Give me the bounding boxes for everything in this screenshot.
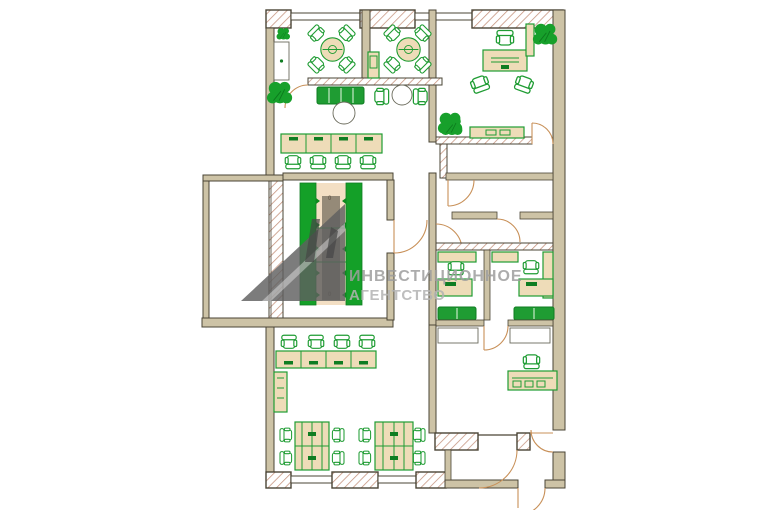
wall-left-lower — [266, 325, 274, 472]
cabinet — [438, 252, 476, 262]
armchair — [375, 88, 389, 104]
office-chair — [307, 24, 326, 43]
table — [510, 328, 550, 343]
corridor-wall-top — [283, 173, 393, 180]
wall-bottom-corner — [545, 480, 565, 488]
monitor — [390, 456, 398, 460]
window — [415, 13, 472, 20]
balcony-wall-left — [203, 175, 209, 325]
shelf — [526, 24, 534, 56]
office-chair — [413, 428, 425, 442]
plant-icon — [441, 117, 463, 135]
office-chair — [332, 428, 344, 442]
guest-chair — [513, 74, 534, 94]
reception-area — [267, 82, 427, 124]
office-chair — [413, 451, 425, 465]
open-office-bottom — [274, 335, 425, 470]
wall-exec-office-left — [429, 10, 436, 142]
desk-cluster — [280, 422, 344, 470]
wall-pillar — [266, 10, 291, 28]
plant-icon — [533, 24, 557, 45]
monitor — [309, 361, 318, 365]
vestibule-wall-v — [445, 450, 451, 480]
office-chair — [332, 451, 344, 465]
armchair — [413, 88, 427, 104]
office-chair — [285, 156, 300, 169]
door-arc — [497, 219, 520, 242]
wall-bottom-vestibule — [445, 480, 518, 488]
monitor — [390, 432, 398, 436]
door-arc — [484, 326, 508, 350]
floor-plan-drawing: 0 0 — [0, 0, 770, 510]
window — [291, 13, 362, 20]
door-arc — [448, 180, 474, 206]
desk-cluster — [359, 422, 425, 470]
door-arc — [532, 123, 553, 144]
offices-divider-wall — [484, 250, 490, 320]
office-chair — [334, 335, 349, 348]
office-chair — [308, 335, 323, 348]
cabinet-handle — [280, 59, 283, 62]
watermark-logo — [241, 204, 345, 301]
office-chair — [307, 55, 326, 74]
office-chair — [383, 55, 402, 74]
wall-hallway-h3b — [520, 212, 553, 219]
monitor — [308, 456, 316, 460]
monitor — [334, 361, 343, 365]
monitor — [289, 137, 298, 141]
monitor — [364, 137, 373, 141]
office-chair — [335, 156, 350, 169]
wall-pillar — [332, 472, 378, 488]
monitor — [339, 137, 348, 141]
office-chair — [360, 156, 375, 169]
vestibule-wall — [517, 433, 530, 450]
monitor — [314, 137, 323, 141]
office-desk — [519, 279, 553, 296]
desk-item — [501, 65, 509, 69]
plant-icon — [277, 28, 291, 40]
guest-chair — [470, 74, 491, 94]
monitor — [284, 361, 293, 365]
meeting-room-b — [368, 24, 432, 78]
coffee-table — [333, 102, 355, 124]
office-chair — [523, 261, 538, 274]
wall-pillar — [266, 472, 291, 488]
monitor — [359, 361, 368, 365]
reception-counter-wall — [308, 78, 442, 85]
watermark-line2: АГЕНТСТВО — [349, 287, 445, 304]
balcony-wall-top — [203, 175, 283, 181]
office-chair — [359, 451, 371, 465]
wall-hallway-h3a — [452, 212, 497, 219]
offices-wall-top — [436, 243, 553, 250]
credenza — [470, 127, 524, 138]
coffee-table — [392, 85, 412, 105]
office-chair — [280, 451, 292, 465]
shelf — [492, 252, 518, 262]
workstation-row-upper — [281, 134, 382, 169]
plant-icon — [267, 82, 292, 103]
monitor — [526, 282, 537, 286]
wall-lower-divider — [429, 325, 436, 433]
watermark-line1: ИНВЕСТИЦИОННОЕ — [349, 268, 523, 285]
office-chair — [281, 335, 296, 348]
meeting-table — [321, 38, 344, 61]
office-chair — [359, 428, 371, 442]
entrance-door-arc — [518, 488, 545, 510]
floor-plan-canvas: 0 0 — [0, 0, 770, 510]
office-chair — [496, 31, 513, 46]
office-chair — [280, 428, 292, 442]
small-offices — [436, 243, 554, 350]
vestibule-wall — [435, 433, 478, 450]
offices-wall-bottom-b — [508, 320, 553, 326]
offices-wall-bottom-a — [436, 320, 484, 326]
balcony-wall-bottom — [202, 318, 393, 327]
wall-hallway-h2 — [446, 173, 553, 180]
window — [291, 476, 332, 483]
wall-pillar — [416, 472, 446, 488]
meeting-room-a — [274, 24, 356, 80]
hallway-furniture — [441, 117, 463, 135]
office-chair — [359, 335, 374, 348]
entrance-vestibule — [435, 430, 553, 510]
door-arc — [394, 220, 427, 253]
office-chair — [310, 156, 325, 169]
monitor — [308, 432, 316, 436]
meeting-table — [397, 38, 420, 61]
wall-right-upper — [553, 10, 565, 430]
table — [438, 328, 478, 343]
corridor-wall-right-a — [387, 180, 394, 220]
window — [378, 476, 416, 483]
office-chair — [523, 355, 539, 369]
